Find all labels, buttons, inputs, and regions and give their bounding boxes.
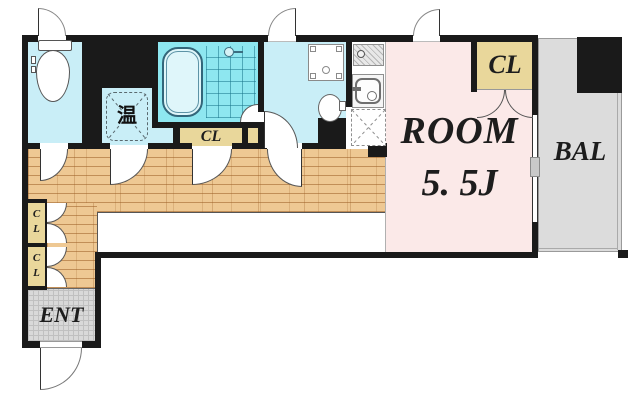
sink-drain <box>367 91 377 101</box>
wall-segment <box>82 88 102 145</box>
toilet-control-button <box>31 56 36 64</box>
wall-segment <box>82 42 152 88</box>
refrigerator-cross-mark <box>352 110 385 145</box>
washer-pan-foot <box>310 73 316 79</box>
wall-segment <box>152 42 158 122</box>
toilet-control-button <box>31 66 36 73</box>
balcony-pillar <box>577 37 622 93</box>
entrance-door-arc <box>40 348 82 390</box>
wall-segment <box>95 253 101 348</box>
wall-segment <box>258 42 264 112</box>
balcony-corner-block <box>618 250 628 258</box>
wall-segment <box>22 341 40 348</box>
closet-letter: C <box>28 207 45 222</box>
washer-pan-drain <box>322 66 330 74</box>
room-label: ROOM <box>386 112 533 150</box>
shower-icon <box>224 47 234 57</box>
wall-segment <box>22 35 28 348</box>
entrance-label: ENT <box>28 304 95 326</box>
balcony-inner-rail-bottom <box>539 248 618 249</box>
washer-pan-foot <box>310 46 316 52</box>
water-heater-label: 温 <box>102 106 152 128</box>
washer-pan-foot <box>336 46 342 52</box>
room-size-label: 5. 5J <box>386 164 533 202</box>
wall-segment <box>66 35 268 42</box>
bath-closet-label: CL <box>180 129 242 145</box>
basin-faucet <box>339 101 346 111</box>
door-threshold <box>413 35 440 42</box>
wall-segment <box>95 252 538 258</box>
wall-segment <box>296 35 413 42</box>
wall-segment <box>440 35 538 42</box>
stove-burner <box>357 50 365 58</box>
wall-segment <box>22 143 40 149</box>
wall-segment <box>68 143 110 149</box>
wall-segment <box>318 118 346 149</box>
closet-letter: C <box>28 251 45 266</box>
void-area <box>97 212 385 252</box>
bathtub-inner-rim <box>166 51 199 113</box>
refrigerator-space <box>351 109 386 146</box>
wall-segment <box>82 341 101 348</box>
floor-plan: 温 CL CL ROOM 5. 5J BAL ENT C L C L <box>0 0 640 400</box>
exterior-door-arc-washroom <box>268 8 296 36</box>
hall-closet-1-label: C L <box>28 207 45 238</box>
door-threshold <box>268 35 296 42</box>
closet-letter: L <box>28 266 45 281</box>
exterior-door-arc-toilet <box>38 8 66 36</box>
hall-closet-2-label: C L <box>28 251 45 282</box>
sink-faucet <box>352 87 361 91</box>
exterior-door-arc-room <box>413 9 440 36</box>
closet-letter: L <box>28 222 45 237</box>
room-closet-label: CL <box>477 52 533 78</box>
wall-segment <box>302 143 318 149</box>
balcony-label: BAL <box>538 138 622 165</box>
shower-icon-stem <box>234 51 243 53</box>
washer-pan-foot <box>336 73 342 79</box>
entrance-threshold <box>40 341 82 348</box>
